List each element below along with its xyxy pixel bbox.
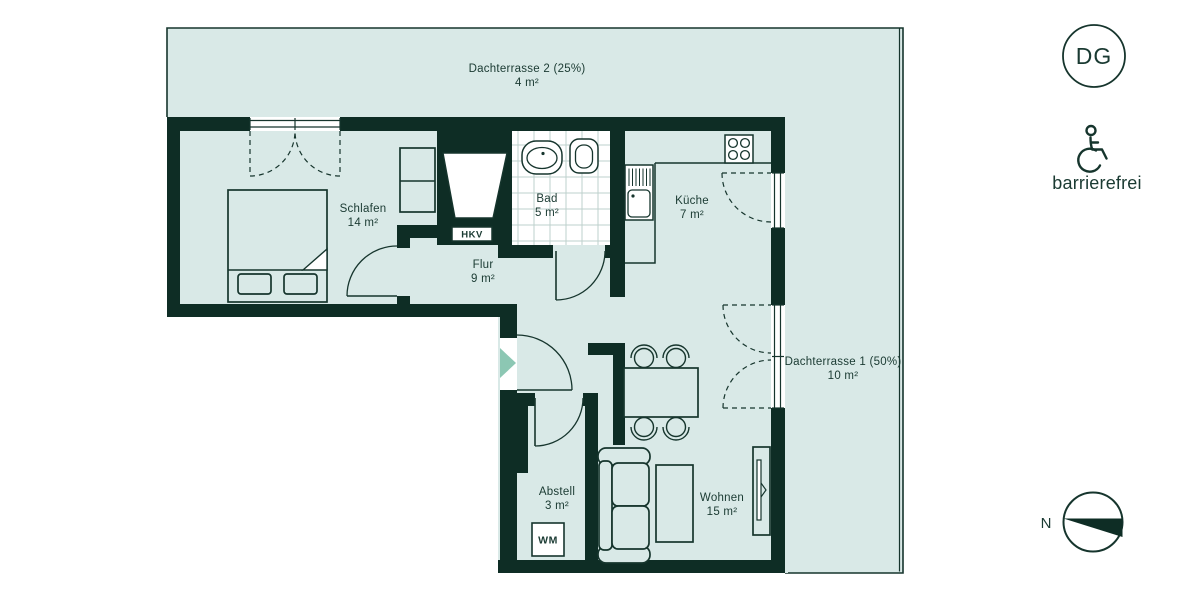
wall-left — [167, 117, 180, 317]
area-abstell: 3 m² — [545, 500, 569, 512]
wall-bedroom-door-jamb-top — [397, 238, 410, 248]
wall-bedroom-divider-top — [397, 225, 437, 238]
wm-label: WM — [538, 535, 558, 547]
stove-icon — [725, 135, 753, 163]
wall-right-lower — [771, 408, 785, 573]
area-wohnen: 15 m² — [707, 506, 738, 518]
wall-entry-upper — [500, 304, 517, 338]
label-wohnen: Wohnen — [700, 492, 744, 504]
bath-sink-icon — [522, 141, 562, 174]
area-flur: 9 m² — [471, 273, 495, 285]
coffee-table-icon — [656, 465, 693, 542]
wall-bath-bottom-left — [498, 245, 553, 258]
tv-board-icon — [753, 447, 770, 535]
wall-abstell-top-left — [500, 393, 535, 406]
area-kueche: 7 m² — [680, 209, 704, 221]
wardrobe-icon — [400, 148, 435, 212]
kitchen-sink-icon — [625, 165, 653, 220]
floor-plan-svg: HKV — [0, 0, 1200, 600]
bed-icon — [228, 190, 327, 302]
toilet-icon — [570, 139, 598, 173]
floor-level-label: DG — [1076, 43, 1113, 69]
wheelchair-icon — [1078, 126, 1106, 172]
accessibility-label: barrierefrei — [1052, 173, 1141, 193]
area-terrace-2: 4 m² — [515, 77, 539, 89]
wall-entry-lower — [500, 390, 517, 560]
hkv-label: HKV — [461, 230, 483, 241]
bathroom — [512, 131, 610, 245]
terrace-1-floor — [785, 28, 903, 573]
wall-abstell-right — [585, 393, 598, 560]
wall-bedroom-bottom — [167, 304, 517, 317]
label-schlafen: Schlafen — [340, 203, 387, 215]
label-abstell: Abstell — [539, 486, 575, 498]
label-flur: Flur — [473, 259, 494, 271]
label-bad: Bad — [536, 193, 557, 205]
wall-right-upper — [771, 117, 785, 173]
label-terrace-1: Dachterrasse 1 (50%) — [785, 356, 902, 368]
dining-table-icon — [624, 368, 698, 417]
storage-room: WM — [532, 523, 564, 556]
area-schlafen: 14 m² — [348, 217, 379, 229]
area-terrace-1: 10 m² — [828, 370, 859, 382]
label-kueche: Küche — [675, 195, 709, 207]
sofa-icon — [598, 448, 650, 563]
wall-kitchen-bath — [610, 131, 625, 297]
wall-top-right — [340, 117, 785, 131]
wall-bedroom-door-jamb-bottom — [397, 296, 410, 304]
area-bad: 5 m² — [535, 207, 559, 219]
wall-right-middle — [771, 228, 785, 305]
compass: N — [1041, 493, 1123, 552]
compass-north-label: N — [1041, 515, 1052, 532]
label-terrace-2: Dachterrasse 2 (25%) — [469, 63, 586, 75]
floor-level-badge: DG — [1063, 25, 1125, 87]
accessibility-badge: barrierefrei — [1052, 126, 1141, 193]
floor-plan-page: HKV — [0, 0, 1200, 600]
